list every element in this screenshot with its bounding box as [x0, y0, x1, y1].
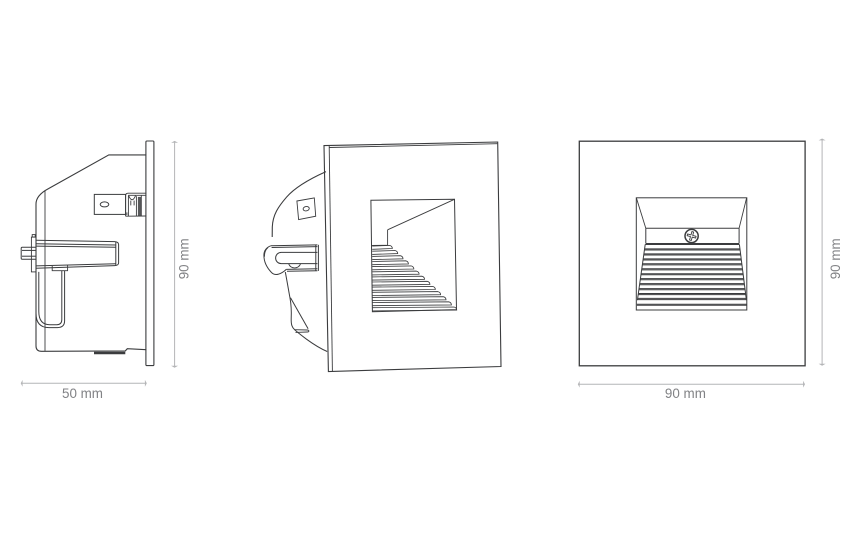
svg-text:90 mm: 90 mm [828, 238, 843, 279]
svg-text:50 mm: 50 mm [62, 386, 103, 401]
svg-text:90 mm: 90 mm [177, 238, 192, 279]
svg-text:90 mm: 90 mm [665, 386, 706, 401]
